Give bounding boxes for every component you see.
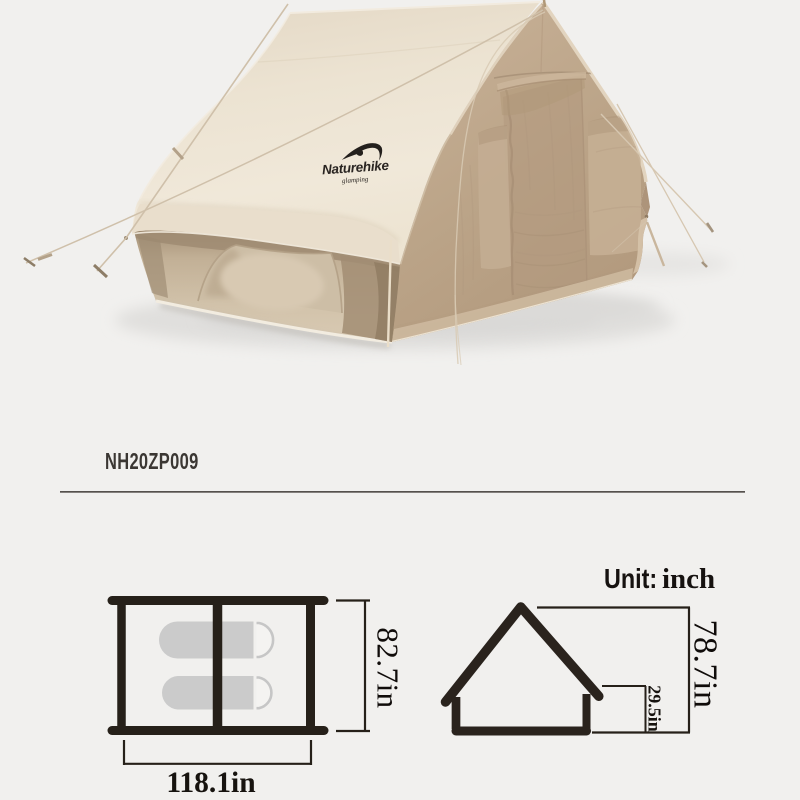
svg-text:inch: inch [662,563,715,595]
svg-text:Unit:: Unit: [604,564,657,594]
svg-text:29.5in: 29.5in [645,685,665,732]
svg-text:118.1in: 118.1in [166,767,255,799]
svg-text:82.7in: 82.7in [371,627,406,708]
svg-text:NH20ZP009: NH20ZP009 [105,449,199,474]
svg-text:78.7in: 78.7in [687,620,724,709]
